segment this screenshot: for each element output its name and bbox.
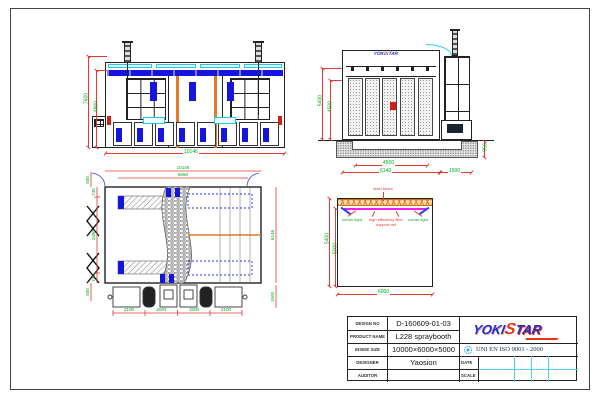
ceiling-rail [346, 66, 436, 67]
rail-hanger [366, 66, 369, 71]
damper-mark [278, 116, 282, 125]
roof-strip [156, 64, 196, 68]
tb-grid-line [348, 356, 578, 357]
dim-plan-left-bottom: 500 [85, 288, 90, 296]
dim-plan-width-outer: 10146 [177, 165, 190, 170]
extension-line [322, 68, 342, 69]
damper-mark [107, 116, 111, 125]
label-corner-light-right: corner light [405, 218, 431, 223]
light-fixture [150, 82, 157, 101]
leader-line [383, 192, 384, 201]
roof-strip [244, 64, 282, 68]
dim-front-width: 10146 [183, 150, 199, 155]
control-screen [447, 124, 463, 133]
machine-motor [158, 128, 164, 142]
wall-panel-grid [230, 78, 270, 120]
dim-plan-bottom-1: 2100 [124, 307, 135, 312]
label-corner-light-left: corner light [339, 218, 365, 223]
door-lock-mark [390, 102, 396, 110]
label-steel-beam: steel beam [362, 187, 404, 192]
dim-front-height-outer: 7600 [85, 87, 90, 111]
dim-side-width-outer: 6146 [379, 169, 392, 174]
rail-hanger [396, 66, 399, 71]
plenum-band [107, 70, 283, 76]
machine-motor [179, 128, 185, 142]
dim-plan-machine-depth: 1500 [270, 291, 275, 302]
dim-section-width: 6000 [377, 290, 390, 295]
fan-machines [108, 285, 247, 307]
light-fixture [227, 82, 234, 101]
machine-motor [242, 128, 248, 142]
company-logo: YOKISTAR [471, 321, 542, 339]
dim-section-height-inner: 5000 [334, 237, 339, 261]
tb-grid-line-cyan [531, 356, 532, 382]
dim-plan-left-lower: 745 [91, 274, 96, 282]
dim-section-height-outer: 5400 [326, 227, 331, 251]
tb-value-design-no: D-160609-01-03 [388, 320, 459, 328]
rail-hanger [381, 66, 384, 71]
logo-underline [526, 338, 559, 340]
tb-label-designer: DESIGNER [348, 361, 387, 365]
booth-logo-part: TAR [388, 52, 398, 57]
label-filter: high efficiency filter support net [367, 218, 405, 227]
dim-plan-left-middle: 3480 [91, 229, 96, 240]
dim-plan-depth: 6146 [270, 229, 275, 240]
door-header-line [346, 76, 436, 77]
tb-label-scale: SCALE [460, 374, 478, 378]
machine-motor [200, 128, 206, 142]
dim-plan-bottom-2: 1500 [156, 307, 167, 312]
tb-value-product-name: L228 spraybooth [388, 333, 459, 341]
chimney [255, 42, 262, 63]
tb-grid-line-cyan [548, 356, 549, 382]
door-swing-arcs [92, 173, 259, 186]
dim-side-height-outer: 5400 [319, 89, 324, 113]
dim-side-width-inner: 4500 [382, 161, 395, 166]
dim-plan-left-upper: 745 [91, 188, 96, 196]
tb-value-designer: Yaosion [388, 359, 459, 367]
intake-box [214, 117, 236, 124]
machine-motor [116, 128, 122, 142]
folding-door-panel [365, 78, 380, 136]
title-block: DESIGN NO PRODUCT NAME INSIDE SIZE DESIG… [347, 316, 577, 381]
ce-badge-icon [463, 345, 473, 355]
tb-grid-line-cyan [514, 356, 515, 382]
roof-strip [108, 64, 152, 68]
foundation-pit [352, 141, 462, 150]
machine-motor [221, 128, 227, 142]
tb-grid-line [478, 356, 479, 382]
rail-hanger [426, 66, 429, 71]
dim-plan-bottom-4: 2100 [221, 307, 232, 312]
folding-door-panel [348, 78, 363, 136]
dim-side-pit-depth: 950 [484, 139, 489, 157]
chimney [124, 42, 131, 63]
drawing-sheet: 7600 4900 10146 YOKISTAR [0, 0, 600, 400]
tb-grid-line [348, 343, 578, 344]
dim-side-height-inner: 4500 [329, 95, 334, 119]
folding-door-panel [400, 78, 415, 136]
tb-label-date: DATE [460, 361, 478, 365]
machine-motor [137, 128, 143, 142]
folding-door-panel [418, 78, 433, 136]
tb-grid-line [348, 330, 459, 331]
logo-part-3: TAR [514, 322, 542, 337]
tb-value-inside-size: 10000×6000×5000 [388, 346, 459, 354]
tb-label-inside-size: INSIDE SIZE [348, 348, 387, 352]
tb-label-product-name: PRODUCT NAME [348, 335, 387, 339]
dim-plan-width-inner: 6650 [178, 172, 189, 177]
chimney [452, 30, 458, 56]
rail-hanger [411, 66, 414, 71]
wall-panel-grid [126, 78, 166, 120]
tb-grid-line [459, 317, 460, 382]
tb-label-auditor: AUDITOR [348, 374, 387, 378]
dim-front-height-inner: 4900 [95, 95, 100, 119]
tb-grid-line-cyan [478, 369, 578, 370]
plan-view: 10146 6650 500 745 3480 745 500 6146 150… [80, 160, 300, 320]
dim-plan-bottom-3: 1500 [189, 307, 200, 312]
logo-part-1: YOKI [472, 322, 506, 337]
tb-label-design-no: DESIGN NO [348, 322, 387, 326]
machine-motor [263, 128, 269, 142]
booth-logo: YOKISTAR [373, 52, 398, 57]
dim-side-machine-width: 1500 [448, 169, 461, 174]
certification-text: UNI EN ISO 9001 - 2000 [476, 346, 543, 353]
rail-hanger [351, 66, 354, 71]
section-outline [337, 198, 433, 287]
intake-box [143, 117, 165, 124]
light-fixture [189, 82, 196, 101]
dim-plan-left-top: 500 [85, 176, 90, 184]
roof-strip [200, 64, 240, 68]
roof-truss [338, 199, 432, 206]
